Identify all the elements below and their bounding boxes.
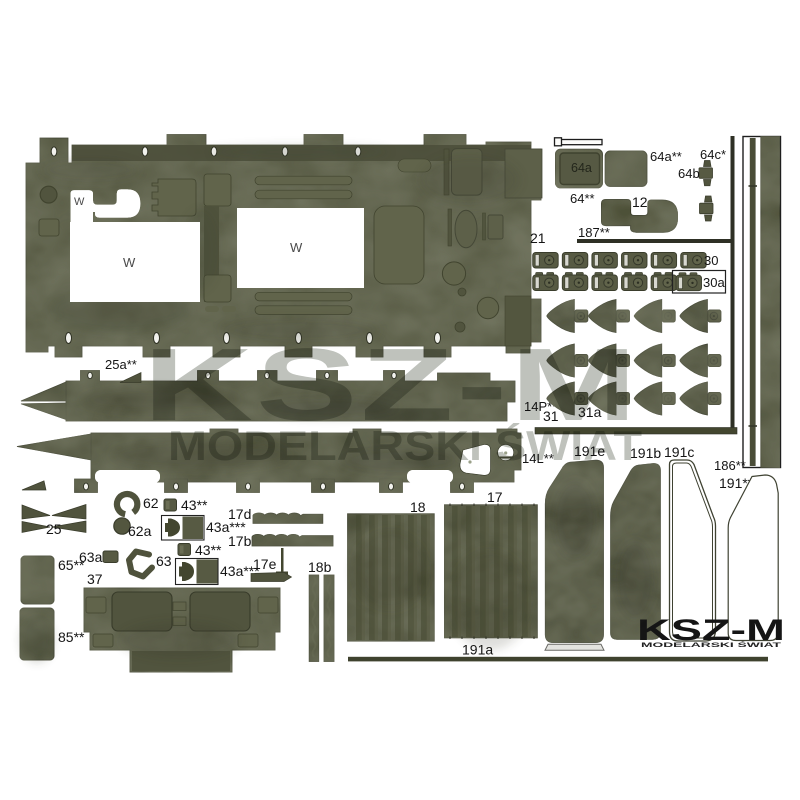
svg-text:63: 63 xyxy=(156,553,172,569)
svg-text:85**: 85** xyxy=(58,629,85,645)
svg-text:191c: 191c xyxy=(664,444,694,460)
svg-text:17e: 17e xyxy=(253,556,277,572)
svg-text:17d: 17d xyxy=(228,506,251,522)
svg-text:64c*: 64c* xyxy=(700,147,726,162)
svg-text:MODELARSKI ŚWIAT: MODELARSKI ŚWIAT xyxy=(641,640,783,649)
svg-text:17b: 17b xyxy=(228,533,252,549)
svg-text:17: 17 xyxy=(487,489,503,505)
svg-text:37: 37 xyxy=(87,571,103,587)
svg-text:64a: 64a xyxy=(571,161,592,175)
svg-text:30a: 30a xyxy=(703,275,725,290)
svg-text:18b: 18b xyxy=(308,559,332,575)
svg-text:W: W xyxy=(290,240,303,255)
svg-text:12: 12 xyxy=(632,194,648,210)
svg-text:186**: 186** xyxy=(714,458,746,473)
svg-text:18: 18 xyxy=(410,499,426,515)
svg-text:64**: 64** xyxy=(570,191,595,206)
svg-text:W: W xyxy=(123,255,136,270)
svg-text:65**: 65** xyxy=(58,557,85,573)
svg-text:W: W xyxy=(74,196,85,208)
svg-text:21: 21 xyxy=(530,230,546,246)
svg-text:64a**: 64a** xyxy=(650,149,682,164)
svg-text:43**: 43** xyxy=(195,542,222,558)
svg-text:25: 25 xyxy=(46,521,62,537)
svg-text:62a: 62a xyxy=(128,523,152,539)
svg-text:MODELARSKI ŚWIAT: MODELARSKI ŚWIAT xyxy=(168,421,642,469)
svg-text:25a**: 25a** xyxy=(105,357,137,372)
svg-text:187**: 187** xyxy=(578,225,610,240)
svg-text:43**: 43** xyxy=(181,497,208,513)
svg-text:30: 30 xyxy=(704,253,718,268)
svg-text:64b: 64b xyxy=(678,166,700,181)
svg-text:62: 62 xyxy=(143,495,159,511)
